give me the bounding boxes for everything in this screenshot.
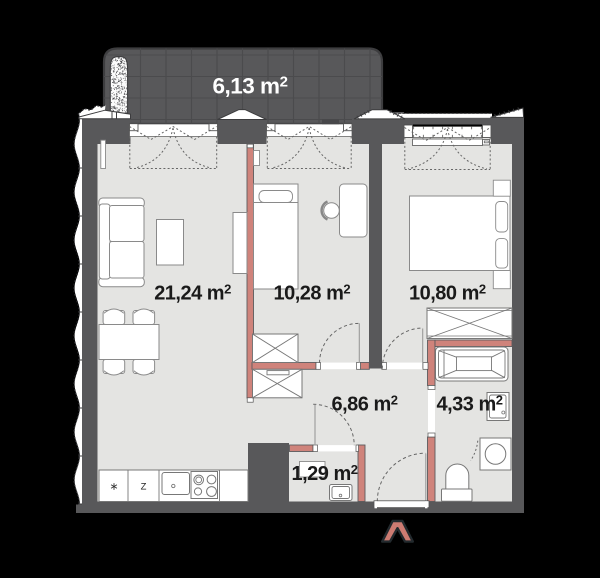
svg-text:10,80 m2: 10,80 m2 [409, 282, 486, 305]
svg-text:4,33 m2: 4,33 m2 [437, 393, 503, 416]
svg-text:Z: Z [141, 482, 147, 493]
svg-text:21,24 m2: 21,24 m2 [154, 282, 231, 305]
svg-text:6,13 m2: 6,13 m2 [213, 74, 288, 99]
svg-text:6,86 m2: 6,86 m2 [332, 393, 398, 416]
svg-text:1,29 m2: 1,29 m2 [292, 462, 358, 485]
svg-text:10,28 m2: 10,28 m2 [274, 282, 351, 305]
